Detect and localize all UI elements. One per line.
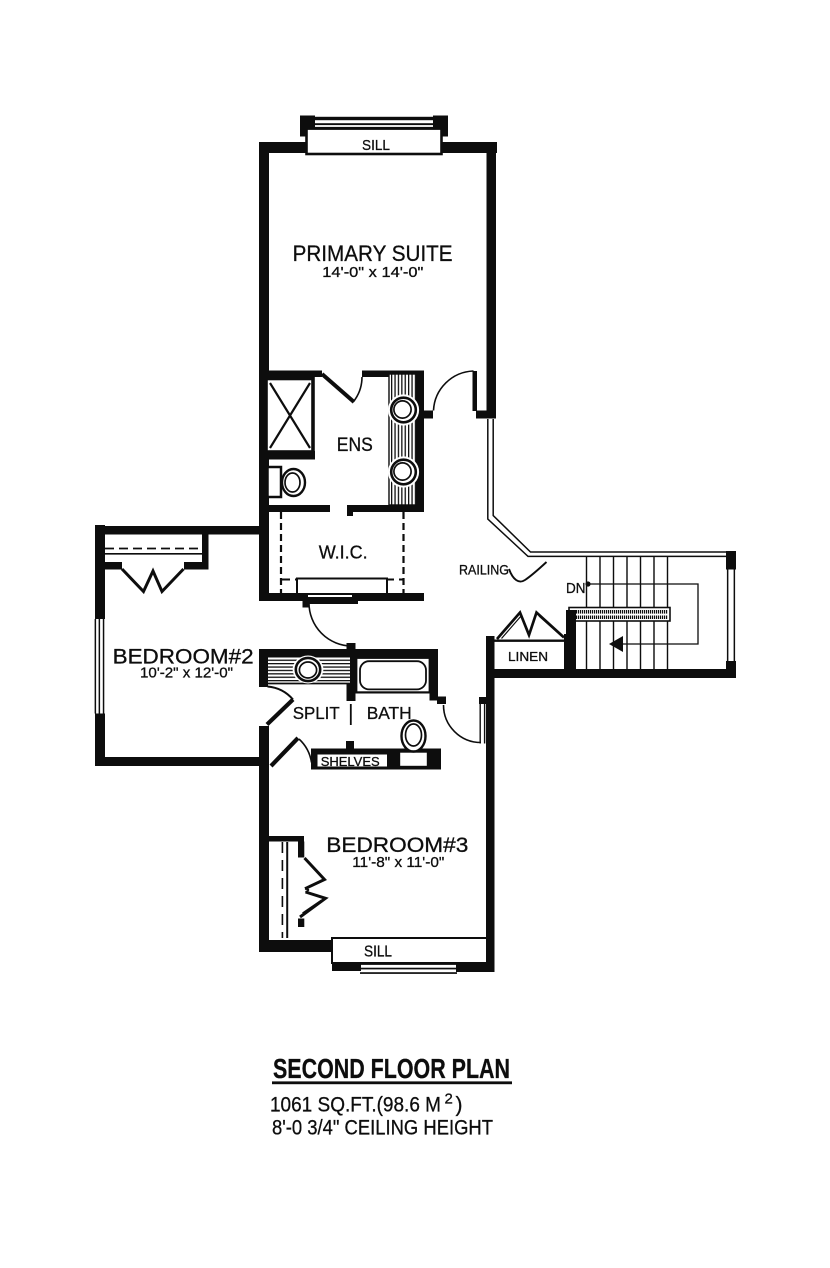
svg-text:PRIMARY SUITE: PRIMARY SUITE [293,241,453,266]
svg-text:SPLIT: SPLIT [293,703,340,723]
svg-text:ENS: ENS [337,434,373,456]
svg-text:8'-0 3/4" CEILING HEIGHT: 8'-0 3/4" CEILING HEIGHT [272,1116,493,1140]
svg-text:DN: DN [566,580,586,597]
svg-text:SHELVES: SHELVES [321,754,380,769]
svg-text:LINEN: LINEN [508,650,548,664]
svg-text:W.I.C.: W.I.C. [319,542,368,563]
svg-text:10'-2" x 12'-0": 10'-2" x 12'-0" [140,665,233,681]
svg-text:1061 SQ.FT.(98.6 M: 1061 SQ.FT.(98.6 M [270,1094,441,1117]
svg-text:SILL: SILL [364,944,392,961]
svg-text:BATH: BATH [367,703,412,723]
svg-text:): ) [456,1094,463,1117]
svg-text:SECOND FLOOR PLAN: SECOND FLOOR PLAN [273,1053,510,1084]
svg-text:14'-0" x 14'-0": 14'-0" x 14'-0" [322,265,423,281]
svg-text:11'-8" x 11'-0": 11'-8" x 11'-0" [352,854,444,871]
svg-text:2: 2 [445,1091,453,1108]
svg-text:RAILING: RAILING [459,563,509,578]
svg-text:SILL: SILL [362,137,390,154]
